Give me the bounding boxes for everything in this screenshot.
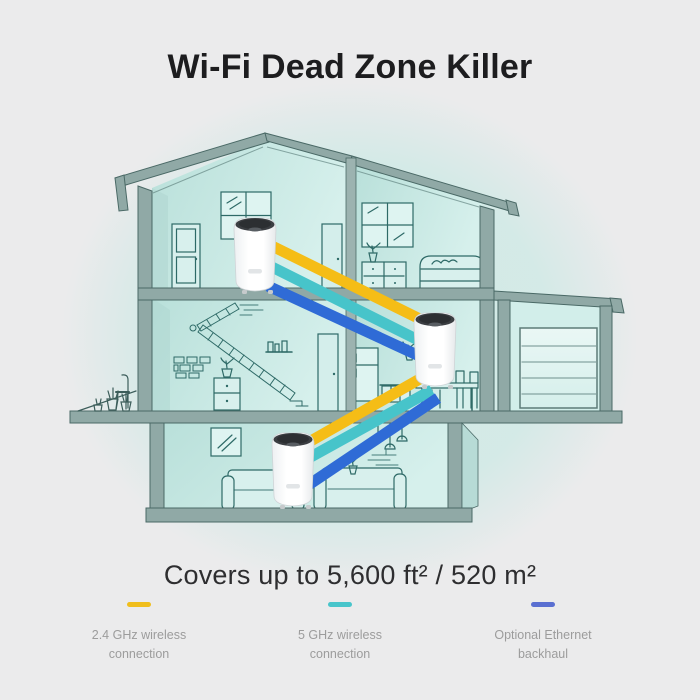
mesh-device-middle-floor <box>414 313 456 389</box>
page-title: Wi-Fi Dead Zone Killer <box>0 48 700 87</box>
mesh-device-attic <box>234 218 276 294</box>
bed <box>420 256 484 290</box>
middle-floor-door <box>318 334 338 411</box>
legend-item-5ghz: 5 GHz wireless connection <box>260 602 420 664</box>
legend-label-ethernet: Optional Ethernet backhaul <box>481 626 605 664</box>
ground-slab <box>146 508 472 522</box>
ground-wall-right <box>448 423 462 512</box>
coverage-text: Covers up to 5,600 ft² / 520 m² <box>0 560 700 591</box>
legend-item-24ghz: 2.4 GHz wireless connection <box>59 602 219 664</box>
wall-frame <box>211 428 241 456</box>
middle-divider <box>346 298 356 413</box>
mesh-device-ground-floor <box>272 433 314 509</box>
ground-wall-left <box>150 423 164 512</box>
legend-item-ethernet: Optional Ethernet backhaul <box>463 602 623 664</box>
attic-divider <box>346 158 356 292</box>
garage-wall-left <box>498 300 510 411</box>
bedroom-window <box>362 203 413 247</box>
legend-dash-5ghz <box>328 602 352 607</box>
garage-door <box>520 328 597 408</box>
attic-door <box>172 224 200 289</box>
legend-label-5ghz: 5 GHz wireless connection <box>278 626 402 664</box>
garage-wall-right <box>600 306 612 411</box>
legend-label-24ghz: 2.4 GHz wireless connection <box>77 626 201 664</box>
wall-right <box>480 206 494 413</box>
house-cutaway-illustration <box>0 0 700 700</box>
legend-dash-ethernet <box>531 602 555 607</box>
legend-dash-24ghz <box>127 602 151 607</box>
